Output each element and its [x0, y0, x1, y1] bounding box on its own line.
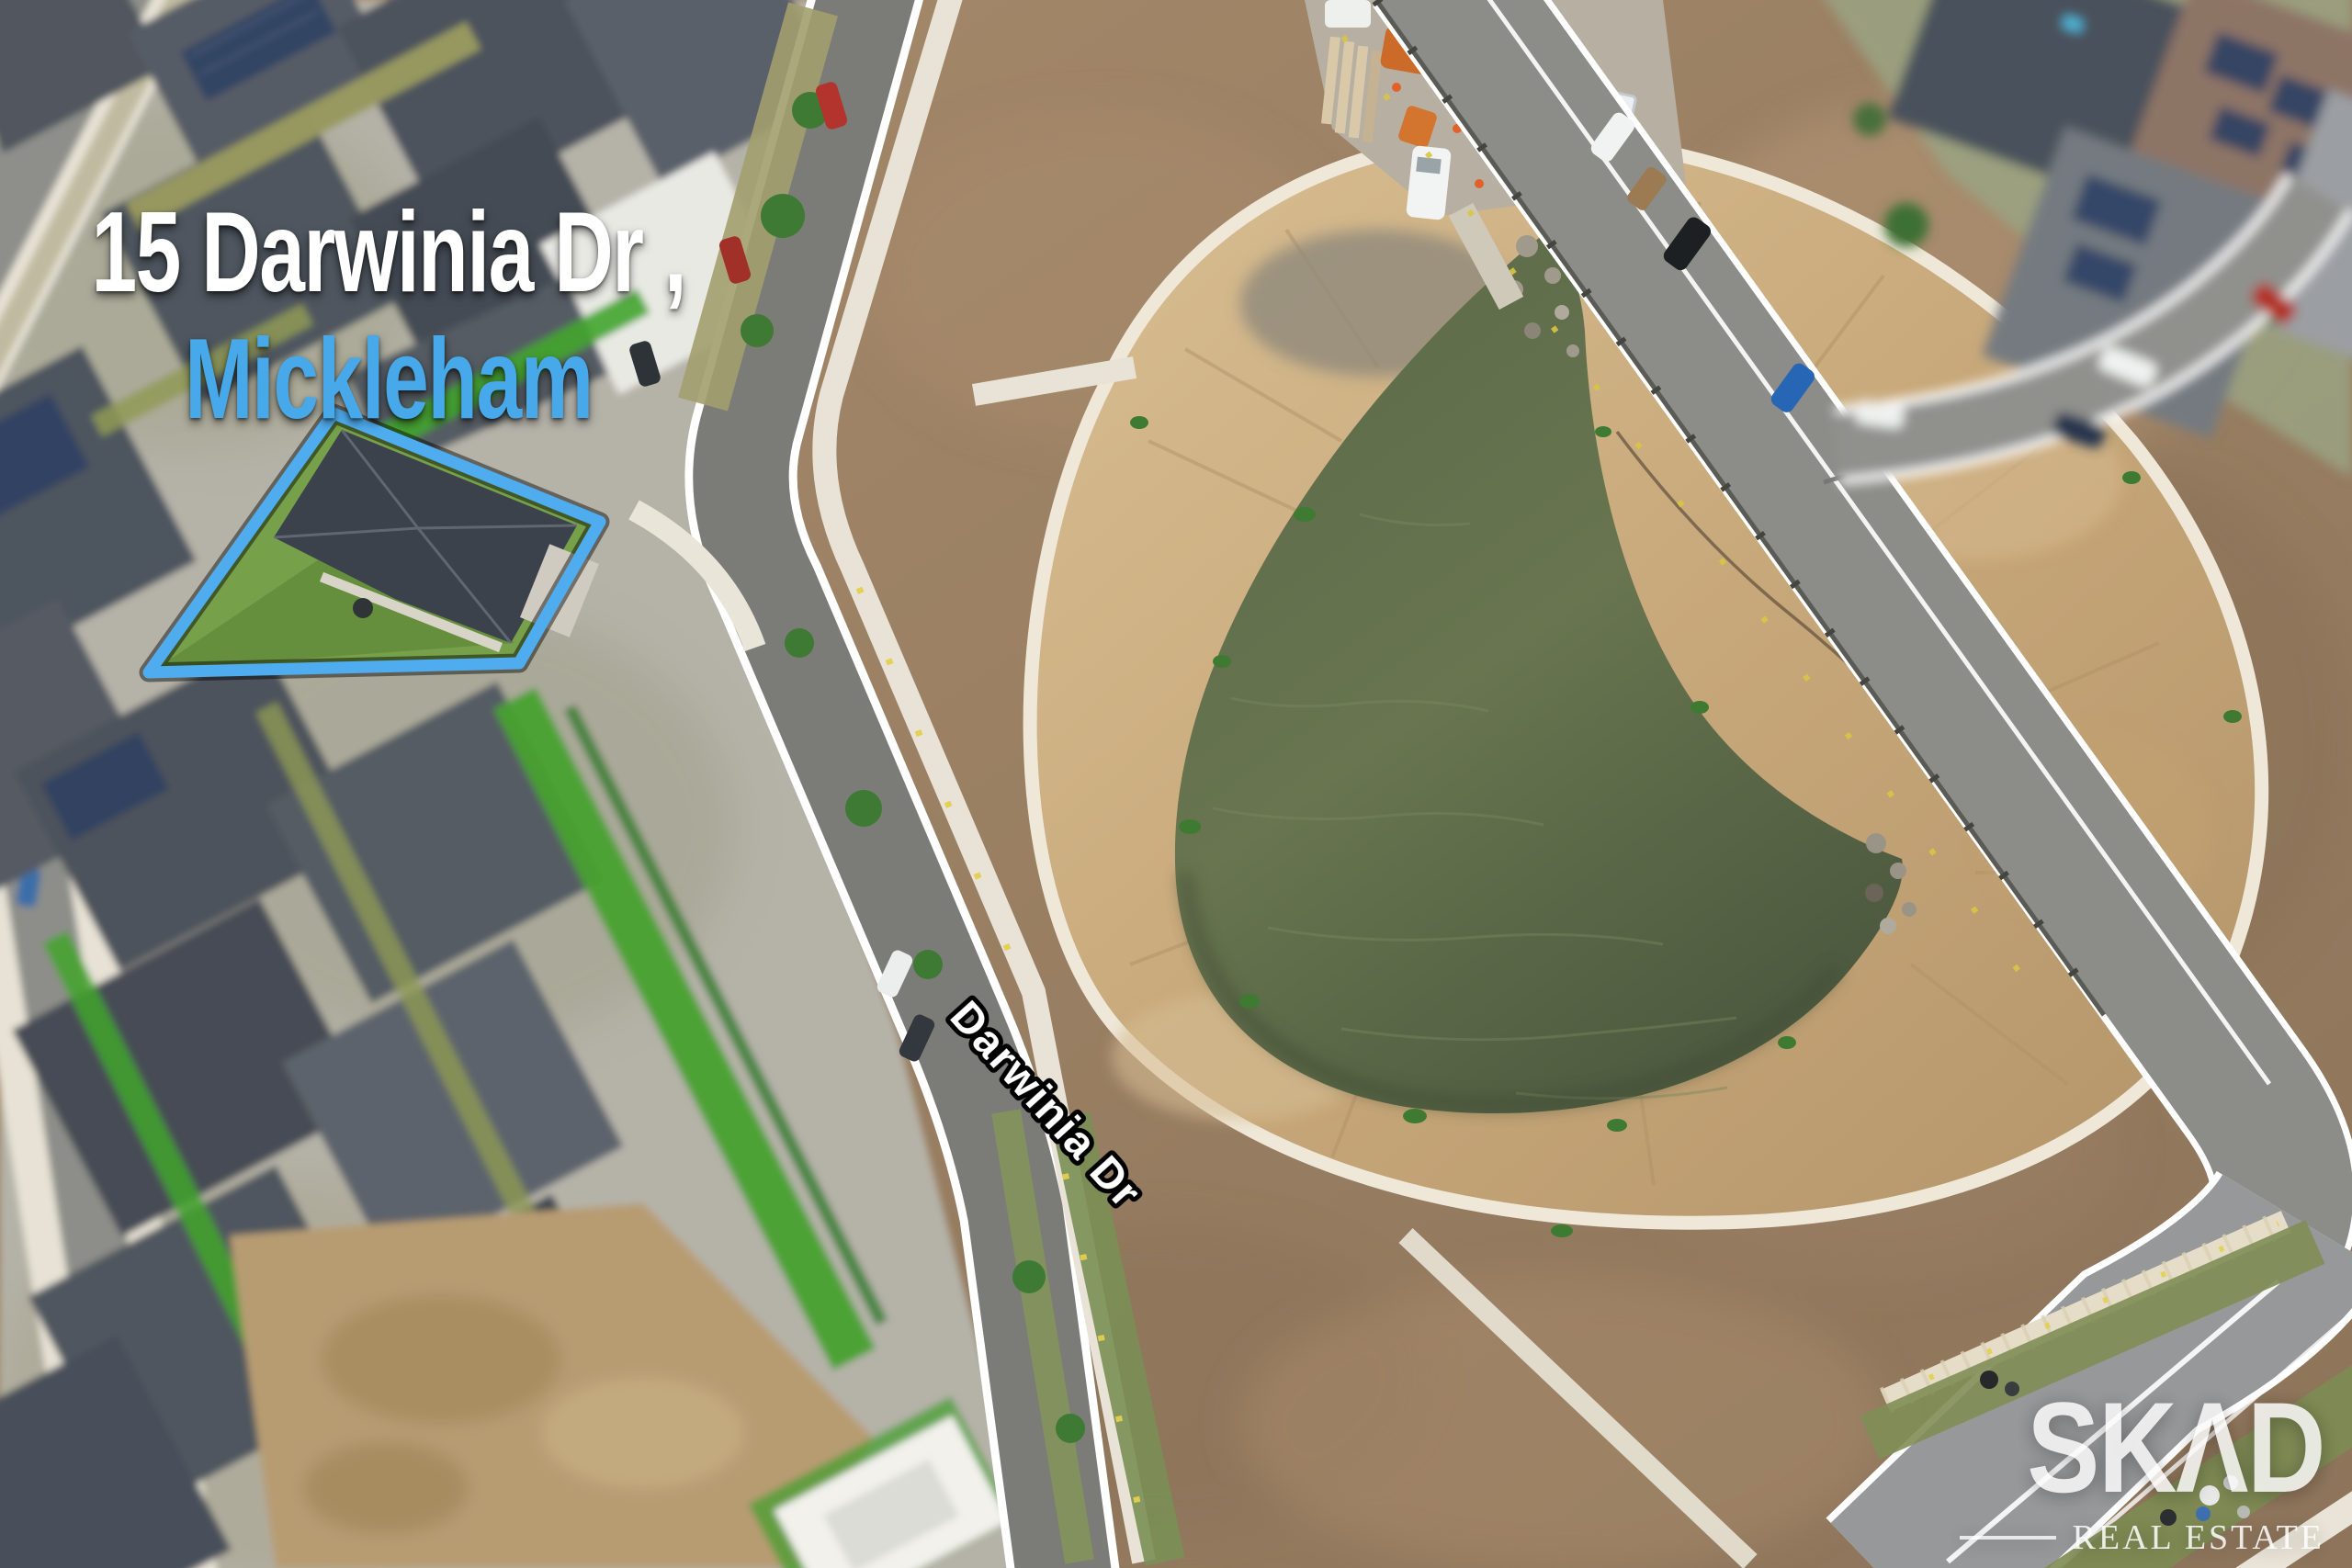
brand-logo-text: SKΛD	[2027, 1383, 2324, 1512]
garden-feature	[353, 598, 373, 618]
title-overlay: 15 Darwinia Dr , Mickleham	[72, 189, 706, 443]
address-line1: 15 Darwinia Dr ,	[72, 189, 706, 316]
brand-tagline: REAL ESTATE	[2073, 1517, 2324, 1558]
top-right-neighborhood	[1819, 0, 2352, 478]
aerial-photo-page: Darwinia Dr 15 Darwinia Dr , Mickleham S…	[0, 0, 2352, 1568]
brand-rule-line	[1960, 1536, 2056, 1540]
brand-watermark: SKΛD REAL ESTATE	[1626, 1383, 2324, 1558]
address-line2: Mickleham	[72, 316, 706, 443]
truck-top	[1325, 0, 1371, 28]
